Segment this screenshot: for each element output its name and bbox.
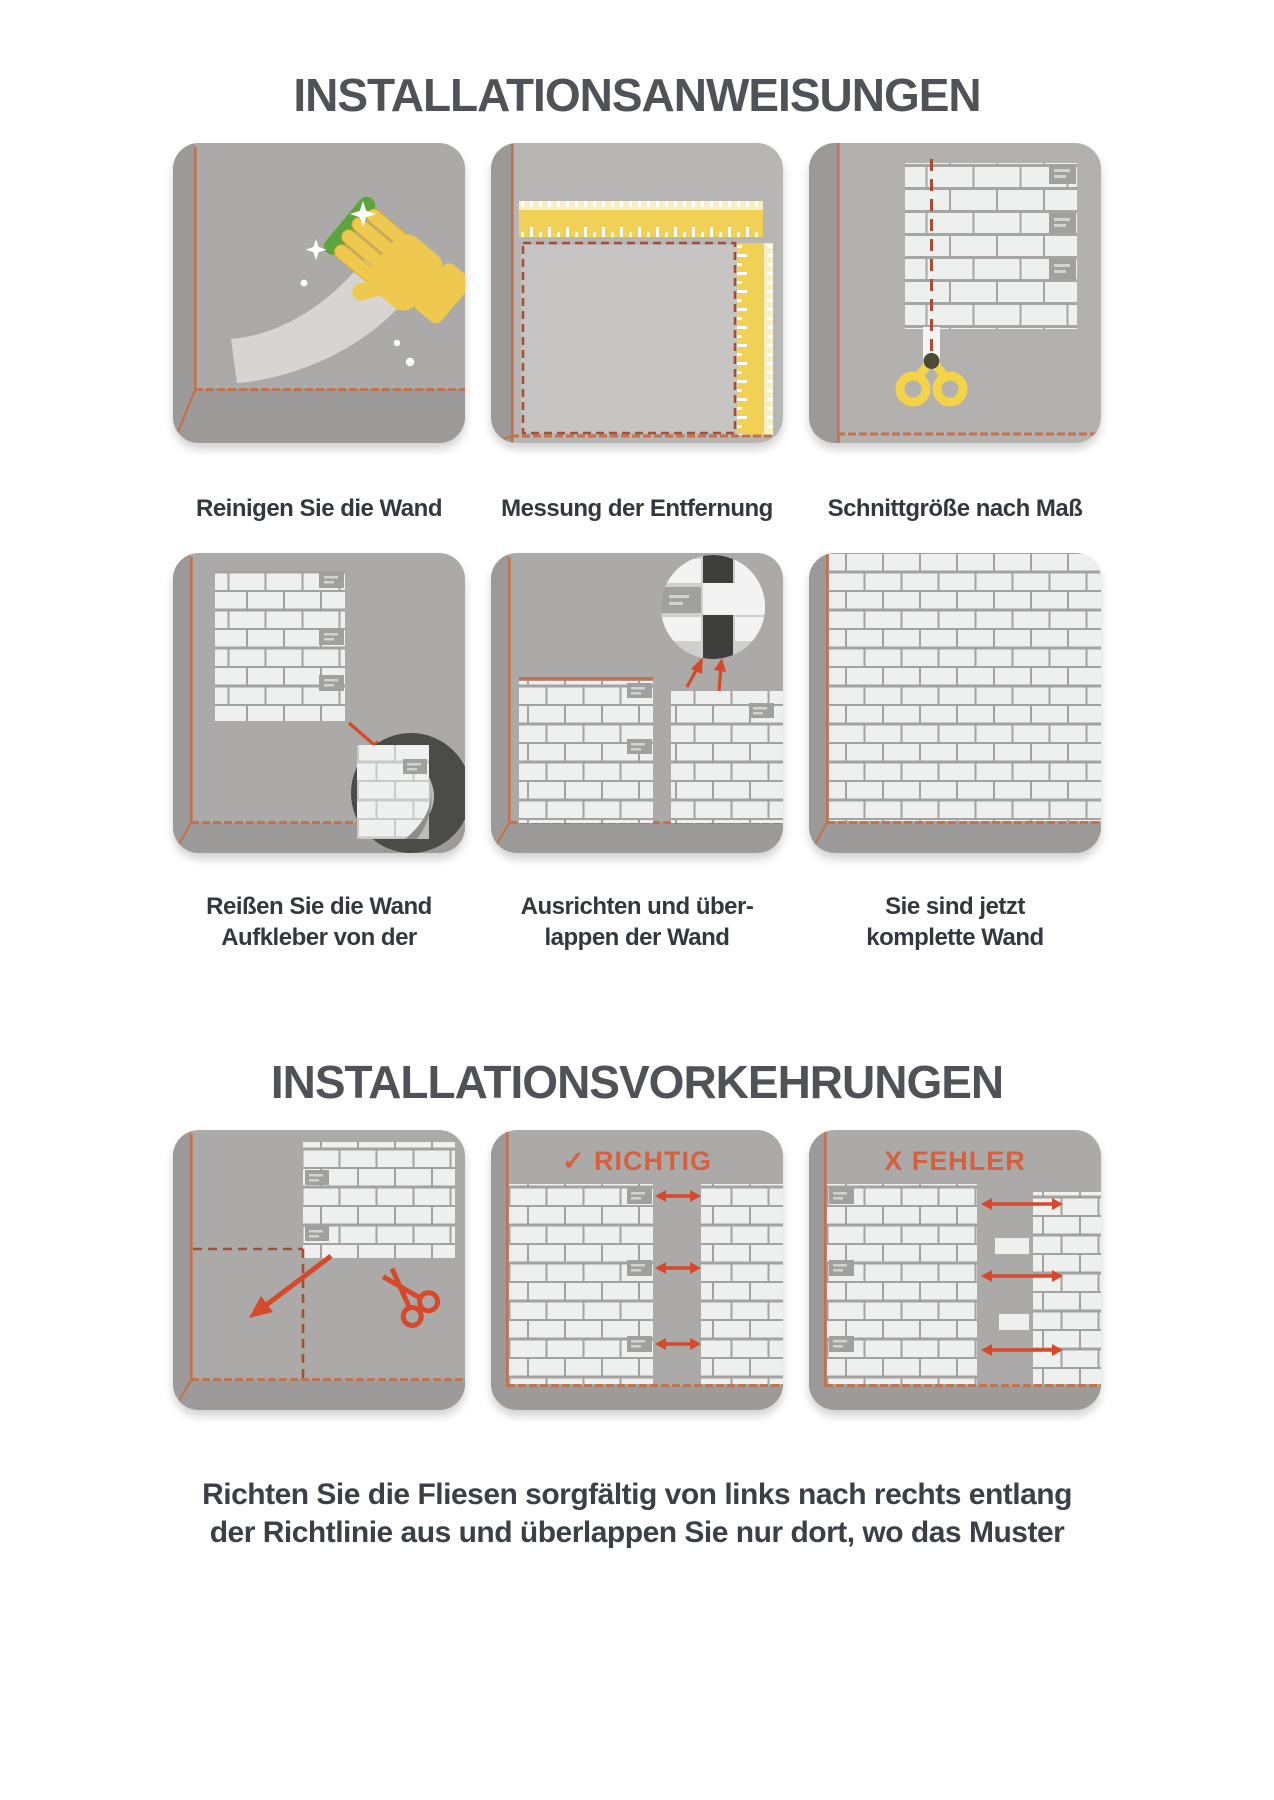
wall-side: [491, 553, 509, 853]
measure-panel: [491, 143, 783, 443]
peel-inset: [351, 733, 465, 853]
step-caption: Reißen Sie die Wand Aufkleber von der: [206, 891, 432, 953]
cut-corner-panel: [173, 1130, 465, 1410]
tile-sheet: [215, 571, 345, 721]
step-peel: Reißen Sie die Wand Aufkleber von der: [173, 553, 465, 953]
corner-line-vertical: [511, 143, 514, 443]
precaution-wrong: X FEHLER: [809, 1130, 1101, 1410]
caption-line-1: Reißen Sie die Wand: [206, 891, 432, 922]
precaution-cut-corner: [173, 1130, 465, 1410]
precautions-row: ✓ RICHTIG: [0, 1130, 1274, 1410]
inset-sheet: [357, 745, 434, 839]
step-caption: Sie sind jetzt komplette Wand: [866, 891, 1043, 953]
step-complete: Sie sind jetzt komplette Wand: [809, 553, 1101, 953]
peel-backing-illustration: [173, 553, 465, 853]
tile-sheet-left: [519, 677, 653, 823]
measure-distance-illustration: [491, 143, 783, 443]
tiled-wall: [829, 553, 1101, 821]
step-caption: Messung der Entfernung: [501, 493, 773, 525]
corner-line-vertical: [190, 1134, 193, 1380]
floor: [177, 1380, 465, 1410]
steps-row-1: Reinigen Sie die Wand: [0, 143, 1274, 525]
stray-tile: [999, 1314, 1029, 1330]
cut-to-size-illustration: [809, 143, 1101, 443]
floor: [813, 823, 1101, 853]
align-panel: [491, 553, 783, 853]
wall-side: [809, 143, 837, 443]
tile-sheet-left: [827, 1184, 977, 1384]
step-clean-wall: Reinigen Sie die Wand: [173, 143, 465, 525]
corner-line-vertical: [190, 557, 193, 823]
footer-instruction: Richten Sie die Fliesen sorgfältig von l…: [0, 1476, 1274, 1553]
corner-line-vertical: [508, 557, 511, 823]
caption-line-2: lappen der Wand: [521, 922, 754, 953]
wrong-label: X FEHLER: [809, 1148, 1101, 1175]
wall-side: [173, 1130, 191, 1410]
measured-area: [521, 245, 737, 433]
corner-line-vertical: [194, 147, 197, 390]
wall-side: [491, 143, 511, 443]
tile-sheet-right: [671, 691, 783, 823]
step-measure: Messung der Entfernung: [491, 143, 783, 525]
ruler-vertical-icon: [737, 243, 773, 435]
peel-panel: [173, 553, 465, 853]
ruler-horizontal-icon: [519, 201, 763, 237]
steps-row-2: Reißen Sie die Wand Aufkleber von der: [0, 553, 1274, 953]
inset-overlap-tile: [703, 583, 735, 615]
caption-line-1: Ausrichten und über-: [521, 891, 754, 922]
wall-side: [809, 553, 827, 853]
section1-title: INSTALLATIONSANWEISUNGEN: [0, 0, 1274, 121]
step-align: Ausrichten und über- lappen der Wand: [491, 553, 783, 953]
floor: [495, 823, 783, 853]
guideline: [519, 677, 653, 680]
step-caption: Ausrichten und über- lappen der Wand: [521, 891, 754, 953]
floor: [179, 389, 465, 443]
caption-line-2: komplette Wand: [866, 922, 1043, 953]
section2-title: INSTALLATIONSVORKEHRUNGEN: [0, 953, 1274, 1108]
footer-line-2: der Richtlinie aus und überlappen Sie nu…: [0, 1514, 1274, 1552]
cut-corner-illustration: [173, 1130, 465, 1410]
precaution-correct: ✓ RICHTIG: [491, 1130, 783, 1410]
tile-sheet: [303, 1142, 455, 1258]
correct-label: ✓ RICHTIG: [491, 1148, 783, 1175]
wrong-panel: X FEHLER: [809, 1130, 1101, 1410]
clean-wall-illustration: [173, 143, 465, 443]
step-caption: Reinigen Sie die Wand: [196, 493, 442, 525]
accent-tiles: [1049, 164, 1076, 279]
caption-line-1: Sie sind jetzt: [866, 891, 1043, 922]
corner-line-vertical: [826, 553, 829, 823]
tile-sheet-left: [509, 1184, 653, 1384]
complete-panel: [809, 553, 1101, 853]
cut-panel: [809, 143, 1101, 443]
clean-wall-panel: [173, 143, 465, 443]
stray-tile: [995, 1238, 1029, 1254]
step-caption: Schnittgröße nach Maß: [828, 493, 1083, 525]
floor: [495, 1386, 783, 1410]
caption-line-2: Aufkleber von der: [206, 922, 432, 953]
instruction-sheet: INSTALLATIONSANWEISUNGEN: [0, 0, 1274, 1800]
floor: [813, 1386, 1101, 1410]
wall-side: [173, 553, 191, 853]
corner-line-vertical: [837, 143, 840, 443]
complete-wall-illustration: [809, 553, 1101, 853]
step-cut: Schnittgröße nach Maß: [809, 143, 1101, 525]
footer-line-1: Richten Sie die Fliesen sorgfältig von l…: [0, 1476, 1274, 1514]
correct-panel: ✓ RICHTIG: [491, 1130, 783, 1410]
align-overlap-illustration: [491, 553, 783, 853]
tile-sheet-right: [701, 1184, 783, 1384]
